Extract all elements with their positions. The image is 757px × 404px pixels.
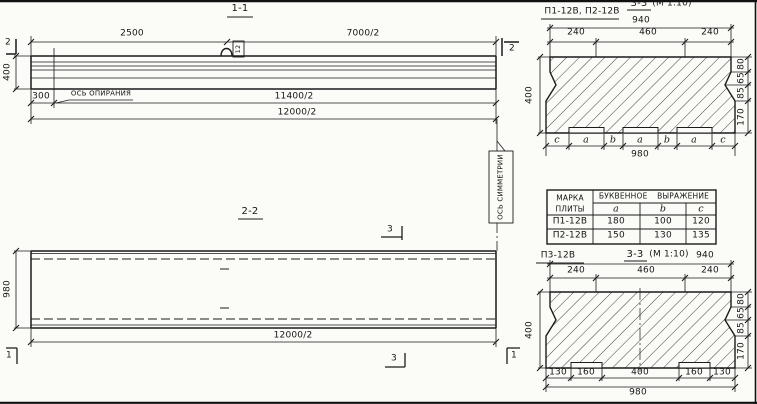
symmetry-axis-label: ОСЬ СИММЕТРИИ [498,154,505,220]
dim-980-bottom-section: 980 [629,389,647,398]
section-1-1-title: 1-1 [232,4,249,14]
section-3-3-bottom-title: 3-3 [627,250,644,260]
cut-mark-3-bottom: 3 [391,355,397,364]
dim-65-top: 65 [738,72,747,84]
table-row2-b: 130 [654,232,672,241]
dim-400-bottom-mid: 400 [631,369,649,378]
dim-2500: 2500 [120,30,144,39]
section-3-3-bottom-scale: (М 1:10) [649,251,688,260]
dim-130-r: 130 [713,369,731,378]
cut-mark-1-right: 1 [511,352,517,361]
segment-letter-b1: b [610,135,616,145]
dim-240-right-bottom: 240 [701,267,719,276]
section-2-2-title: 2-2 [242,207,259,217]
dim-400-height: 400 [4,63,13,81]
mark-label-p3: П3-12В [541,252,576,261]
dim-400-bottom-section: 400 [526,321,535,339]
table-header-marka: МАРКА [556,194,584,202]
dim-80-bottom: 80 [738,293,747,305]
table-row1-c: 120 [692,218,710,227]
cut-mark-1-left: 1 [6,352,12,361]
dim-170-bottom: 170 [738,342,747,360]
cut-mark-2-left: 2 [5,39,11,48]
table-row1-mark: П1-12В [553,218,588,227]
dim-11400-2: 11400/2 [275,93,314,102]
dim-460-bottom: 460 [637,267,655,276]
table-row1-b: 100 [654,218,672,227]
table-header-plity: ПЛИТЫ [555,205,584,213]
dim-160-l: 160 [577,369,595,378]
dim-300: 300 [32,93,50,102]
cut-mark-2-right: 2 [509,45,515,54]
table-col-a: a [613,204,619,214]
dim-240-right-top: 240 [701,29,719,38]
dim-240-left-top: 240 [567,29,585,38]
table-col-b: b [660,204,666,214]
marks-label-p1-p2: П1-12В, П2-12В [544,8,619,17]
dim-170-top: 170 [738,108,747,126]
dim-80-top: 80 [738,58,747,70]
dim-7000-2: 7000/2 [347,30,380,39]
section-3-3-top-title: 3-3 [631,0,648,9]
dim-940-top: 940 [632,17,650,26]
drawing-sheet: 1-1 2500 7000/2 12 2 2 400 300 ОСЬ ОПИРА… [0,0,757,404]
dim-160-r: 160 [685,369,703,378]
dim-980-width: 980 [4,280,13,298]
segment-letter-a2: a [637,135,643,145]
lifting-loop-tag: 12 [235,45,242,54]
table-row2-mark: П2-12В [553,232,588,241]
bearing-axis-label: ОСЬ ОПИРАНИЯ [71,91,131,98]
segment-letter-c2: c [720,135,726,145]
dim-12000-2-bottom: 12000/2 [274,332,313,341]
dim-400-top-section: 400 [526,86,535,104]
dim-85-bottom: 85 [738,322,747,334]
dim-460-top: 460 [639,29,657,38]
dim-85-top: 85 [738,87,747,99]
drawing-linework [0,0,757,404]
table-col-c: c [698,204,704,214]
table-row1-a: 180 [607,218,625,227]
table-header-expression: БУКВЕННОЕ ВЫРАЖЕНИЕ [599,192,709,200]
segment-letter-a1: a [583,135,589,145]
segment-letter-a3: a [691,135,697,145]
dim-12000-2-top: 12000/2 [278,109,317,118]
dim-130-l: 130 [549,369,567,378]
table-row2-a: 150 [607,232,625,241]
segment-letter-c1: c [554,135,560,145]
cut-mark-3-top: 3 [387,226,393,235]
table-row2-c: 135 [692,232,710,241]
section-3-3-top-scale: (М 1:10) [652,0,691,9]
dim-980-top-section: 980 [631,151,649,160]
dim-240-left-bottom: 240 [567,267,585,276]
segment-letter-b2: b [664,135,670,145]
dim-940-bottom: 940 [696,252,714,261]
dim-65-bottom: 65 [738,307,747,319]
